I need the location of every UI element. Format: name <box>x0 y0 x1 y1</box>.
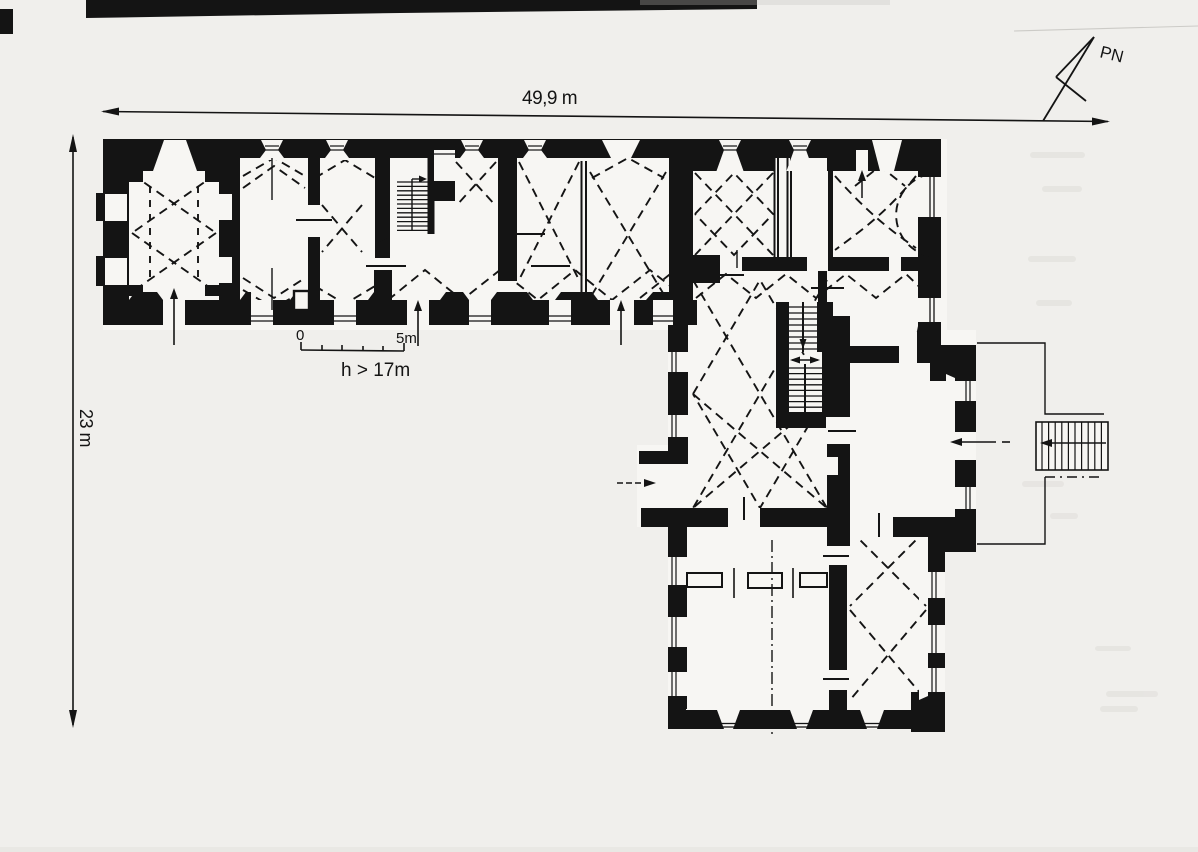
svg-text:5m: 5m <box>396 330 417 347</box>
svg-text:23 m: 23 m <box>76 409 96 447</box>
svg-text:h > 17m: h > 17m <box>341 360 410 381</box>
svg-text:49,9 m: 49,9 m <box>522 88 577 109</box>
